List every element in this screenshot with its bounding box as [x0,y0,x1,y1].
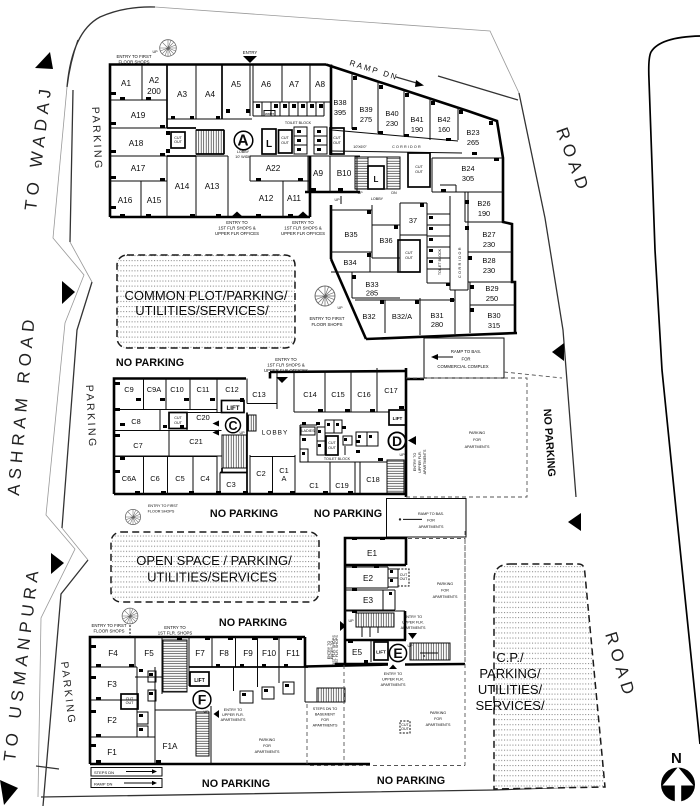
svg-text:A17: A17 [131,164,146,173]
svg-text:C20: C20 [196,413,210,422]
svg-text:FLOOR SHOPS: FLOOR SHOPS [148,510,175,514]
svg-text:C3: C3 [226,480,235,489]
svg-text:B10: B10 [337,169,352,178]
svg-text:230: 230 [386,119,398,128]
svg-text:NO PARKING: NO PARKING [377,775,445,787]
svg-text:APARTMENTS: APARTMENTS [433,595,458,599]
svg-text:E3: E3 [363,596,373,605]
svg-text:C15: C15 [331,390,345,399]
svg-text:C4: C4 [200,474,209,483]
svg-text:OUT: OUT [174,140,183,144]
svg-text:1ST FLR SHOPS &: 1ST FLR SHOPS & [284,226,322,231]
svg-text:UTILITIES/SERVICES: UTILITIES/SERVICES [147,570,277,585]
svg-text:OUT: OUT [126,701,135,705]
svg-text:RAMP DN: RAMP DN [94,782,112,787]
svg-text:OPEN SPACE / PARKING/: OPEN SPACE / PARKING/ [136,553,292,568]
svg-text:B28: B28 [482,256,495,265]
svg-text:C21: C21 [189,437,203,446]
svg-text:B32: B32 [362,312,375,321]
svg-text:F1A: F1A [162,742,178,751]
svg-text:B27: B27 [482,230,495,239]
svg-text:160: 160 [438,125,450,134]
svg-text:CUT: CUT [328,441,336,445]
svg-text:315: 315 [488,321,500,330]
svg-text:DN: DN [391,191,397,195]
svg-text:B24: B24 [461,164,474,173]
svg-text:B26: B26 [477,199,490,208]
svg-text:F11: F11 [286,649,300,658]
svg-text:B36: B36 [379,236,392,245]
svg-text:STEPS DN: STEPS DN [94,770,114,775]
svg-text:ENTRY TO: ENTRY TO [413,453,417,472]
svg-text:CUT: CUT [333,136,341,140]
svg-text:PARKING: PARKING [469,431,485,435]
svg-text:C12: C12 [225,385,239,394]
svg-text:UPPER FLR OFFICES: UPPER FLR OFFICES [281,231,325,236]
svg-text:LOBBY: LOBBY [237,150,250,154]
svg-text:LIFT: LIFT [393,416,403,421]
svg-text:APARTMENTS: APARTMENTS [221,718,246,722]
svg-text:FOR: FOR [321,718,329,722]
svg-text:A12: A12 [259,194,274,203]
svg-text:C9A: C9A [147,385,161,394]
svg-text:UPPER FLR.: UPPER FLR. [402,621,424,625]
svg-text:B29: B29 [485,284,498,293]
svg-text:APARTMENTS: APARTMENTS [255,750,280,754]
svg-text:ENTRY TO: ENTRY TO [292,220,314,225]
svg-text:OUT: OUT [328,446,337,450]
svg-text:L: L [266,139,272,150]
svg-text:1ST FLR. SHOPS: 1ST FLR. SHOPS [158,631,193,636]
svg-text:UPPER FLR.: UPPER FLR. [382,678,404,682]
svg-text:A6: A6 [261,80,271,89]
svg-text:A7: A7 [289,80,299,89]
svg-text:OUT: OUT [400,577,409,581]
svg-text:UPPER FLR.: UPPER FLR. [418,451,422,473]
svg-text:275: 275 [360,115,372,124]
svg-text:ENTRY: ENTRY [243,50,258,55]
svg-text:UTILITIES/SERVICES/: UTILITIES/SERVICES/ [135,303,269,318]
svg-text:APARTMENTS: APARTMENTS [381,683,406,687]
svg-text:395: 395 [334,108,346,117]
svg-text:285: 285 [366,289,378,298]
svg-text:FOR: FOR [263,744,271,748]
svg-text:TOILET BLOCK: TOILET BLOCK [285,121,312,125]
svg-text:UP: UP [337,306,343,310]
svg-text:N: N [671,750,682,767]
svg-text:B30: B30 [487,311,500,320]
svg-text:190: 190 [478,209,490,218]
svg-text:UPPER FLR.: UPPER FLR. [222,713,244,717]
svg-text:230: 230 [483,240,495,249]
svg-text:A9: A9 [313,169,323,178]
svg-text:BASEMENT: BASEMENT [315,713,336,717]
svg-text:CUT: CUT [415,165,423,169]
svg-text:LIFT: LIFT [376,650,386,655]
svg-text:L: L [374,175,379,184]
svg-text:FLOOR SHOPS: FLOOR SHOPS [93,629,124,634]
svg-text:ENTRY TO FIRST: ENTRY TO FIRST [116,54,151,59]
svg-text:C11: C11 [196,385,209,394]
svg-text:FOR: FOR [473,438,481,442]
svg-text:10'X6'0": 10'X6'0" [353,145,367,149]
svg-text:C6A: C6A [122,474,136,483]
svg-text:OUT: OUT [401,727,410,731]
svg-text:C16: C16 [357,390,371,399]
svg-text:C17: C17 [384,386,398,395]
svg-text:ENTRY TO: ENTRY TO [327,641,331,660]
svg-text:NO PARKING: NO PARKING [202,778,270,790]
svg-text:190: 190 [411,125,423,134]
svg-text:water: water [265,112,275,116]
svg-text:E2: E2 [363,574,373,583]
svg-text:280: 280 [431,320,443,329]
svg-text:ENTRY TO FIRST: ENTRY TO FIRST [91,623,126,628]
svg-text:A1: A1 [121,79,131,88]
svg-text:COMMON PLOT/PARKING/: COMMON PLOT/PARKING/ [125,288,288,303]
svg-text:NO PARKING: NO PARKING [116,357,184,369]
svg-text:TOILET BLOCK: TOILET BLOCK [438,248,442,275]
svg-text:E: E [393,645,402,661]
svg-text:B23: B23 [466,128,479,137]
svg-text:1ST FLR SHOPS &: 1ST FLR SHOPS & [267,363,305,368]
svg-text:A19: A19 [131,111,146,120]
svg-text:ENTRY TO: ENTRY TO [384,672,403,676]
svg-text:CUT: CUT [405,251,413,255]
svg-text:C7: C7 [133,441,142,450]
svg-text:A8: A8 [315,80,325,89]
svg-text:UP: UP [357,191,363,195]
svg-text:F5: F5 [144,649,154,658]
svg-text:OUT: OUT [333,141,342,145]
svg-text:250: 250 [486,294,498,303]
svg-text:ENTRY TO: ENTRY TO [164,625,186,630]
svg-text:APARTMENTS: APARTMENTS [423,449,427,474]
svg-text:A15: A15 [147,196,162,205]
svg-text:NO PARKING: NO PARKING [314,508,382,520]
svg-text:A14: A14 [175,182,190,191]
svg-text:E1: E1 [367,549,377,558]
svg-text:UPPER FLR OFFICES: UPPER FLR OFFICES [215,231,259,236]
svg-text:A13: A13 [205,182,220,191]
svg-text:C18: C18 [366,475,380,484]
svg-text:C9: C9 [124,385,133,394]
svg-text:PARKING: PARKING [430,711,446,715]
svg-text:C: C [228,419,237,433]
svg-text:UP: UP [399,453,405,457]
svg-text:A22: A22 [266,164,281,173]
svg-text:APARTMENTS: APARTMENTS [313,724,338,728]
svg-text:B32/A: B32/A [392,312,412,321]
svg-text:SERVICES/: SERVICES/ [475,698,545,713]
svg-text:FOR: FOR [427,519,435,523]
svg-text:265: 265 [467,138,479,147]
svg-text:A2: A2 [149,76,159,85]
svg-text:D: D [392,433,402,449]
svg-text:UPPER FLR OFFICES: UPPER FLR OFFICES [264,368,308,373]
svg-text:APARTMENTS: APARTMENTS [419,525,444,529]
svg-text:FLOOR SHOPS: FLOOR SHOPS [118,60,149,65]
svg-text:UTILITIES/: UTILITIES/ [478,682,543,697]
svg-text:STEPS DN TO: STEPS DN TO [313,707,338,711]
svg-text:C14: C14 [303,390,317,399]
svg-text:PARKING/: PARKING/ [479,666,541,681]
svg-text:C6: C6 [150,474,159,483]
svg-text:C19: C19 [335,481,349,490]
svg-text:A3: A3 [177,90,187,99]
svg-text:OUT: OUT [415,170,424,174]
svg-text:UP: UP [334,198,340,202]
svg-text:B34: B34 [343,258,356,267]
svg-text:ENTRY TO: ENTRY TO [224,708,243,712]
svg-text:10' WIDE: 10' WIDE [235,155,251,159]
svg-text:A: A [237,133,248,150]
svg-text:F10: F10 [262,649,277,658]
svg-text:ENTRY TO FIRST: ENTRY TO FIRST [309,316,344,321]
svg-text:F7: F7 [195,649,205,658]
svg-text:CUT: CUT [281,136,289,140]
svg-text:UP: UP [348,619,354,623]
svg-text:305: 305 [462,174,474,183]
svg-text:FOR: FOR [441,589,449,593]
svg-text:A11: A11 [287,194,301,203]
svg-text:F9: F9 [243,649,253,658]
svg-text:B41: B41 [410,115,423,124]
svg-text:C5: C5 [175,474,184,483]
svg-text:C2: C2 [256,469,265,478]
svg-text:APARTMENTS: APARTMENTS [401,626,426,630]
svg-text:B31: B31 [430,311,443,320]
svg-text:FOR: FOR [461,357,470,362]
svg-text:A18: A18 [129,139,144,148]
svg-text:ENTRY TO FIRST: ENTRY TO FIRST [148,504,179,508]
svg-text:A16: A16 [118,196,133,205]
svg-text:B38: B38 [333,98,346,107]
svg-text:B40: B40 [385,109,398,118]
svg-text:RAMP TO BAS.: RAMP TO BAS. [418,512,444,516]
svg-text:A4: A4 [205,90,215,99]
svg-text:APARTMENTS: APARTMENTS [465,445,490,449]
svg-text:B39: B39 [359,105,372,114]
svg-text:F: F [198,692,207,708]
svg-text:E5: E5 [352,648,362,657]
svg-text:A5: A5 [231,80,241,89]
svg-text:UP: UP [152,50,158,54]
svg-text:APARTMENTS: APARTMENTS [426,723,451,727]
svg-text:TOILET BLOCK: TOILET BLOCK [324,457,351,461]
svg-text:PARKING: PARKING [437,582,453,586]
svg-text:NO PARKING: NO PARKING [219,617,287,629]
svg-text:ENTRY TO: ENTRY TO [404,615,423,619]
svg-text:LOBBY: LOBBY [371,197,384,201]
svg-text:200: 200 [147,87,161,96]
svg-text:1ST FLR SHOPS &: 1ST FLR SHOPS & [218,226,256,231]
svg-text:NO PARKING: NO PARKING [210,508,278,520]
svg-text:230: 230 [483,266,495,275]
svg-text:UP: UP [239,431,245,435]
svg-text:LOBBY: LOBBY [262,430,289,437]
svg-text:COMMERCIAL COMPLEX: COMMERCIAL COMPLEX [437,364,488,369]
svg-text:C13: C13 [252,390,266,399]
svg-text:F1: F1 [107,748,117,757]
svg-text:LIFT: LIFT [226,405,239,412]
svg-text:OUT: OUT [405,256,414,260]
svg-text:F2: F2 [107,716,117,725]
svg-text:37: 37 [409,216,417,225]
svg-text:LADIES: LADIES [301,429,315,433]
svg-text:FLOOR SHOPS: FLOOR SHOPS [311,322,342,327]
svg-text:B35: B35 [344,230,357,239]
svg-text:LIFT: LIFT [194,678,205,684]
svg-text:UP: UP [407,644,413,648]
svg-text:PARKING: PARKING [259,738,275,742]
svg-text:CORRIDOR: CORRIDOR [458,246,462,278]
svg-text:ENTRY TO: ENTRY TO [226,220,248,225]
svg-text:1ST FLR. SHOPS: 1ST FLR. SHOPS [332,635,336,665]
svg-text:ENTRY TO: ENTRY TO [275,357,297,362]
svg-text:OUT: OUT [174,421,183,425]
svg-text:C1: C1 [309,481,318,490]
svg-text:CUT: CUT [174,416,182,420]
svg-text:C10: C10 [170,385,184,394]
svg-text:B42: B42 [437,115,450,124]
svg-text:OUT: OUT [281,141,290,145]
svg-text:FOR: FOR [434,717,442,721]
svg-text:A: A [282,474,287,483]
svg-text:C8: C8 [131,417,140,426]
svg-text:F3: F3 [107,680,117,689]
svg-text:C.P./: C.P./ [496,650,524,665]
svg-text:RAMP TO BAS.: RAMP TO BAS. [451,349,481,354]
svg-text:CORRIDOR: CORRIDOR [392,145,422,149]
svg-text:F8: F8 [219,649,229,658]
svg-text:F4: F4 [108,649,118,658]
